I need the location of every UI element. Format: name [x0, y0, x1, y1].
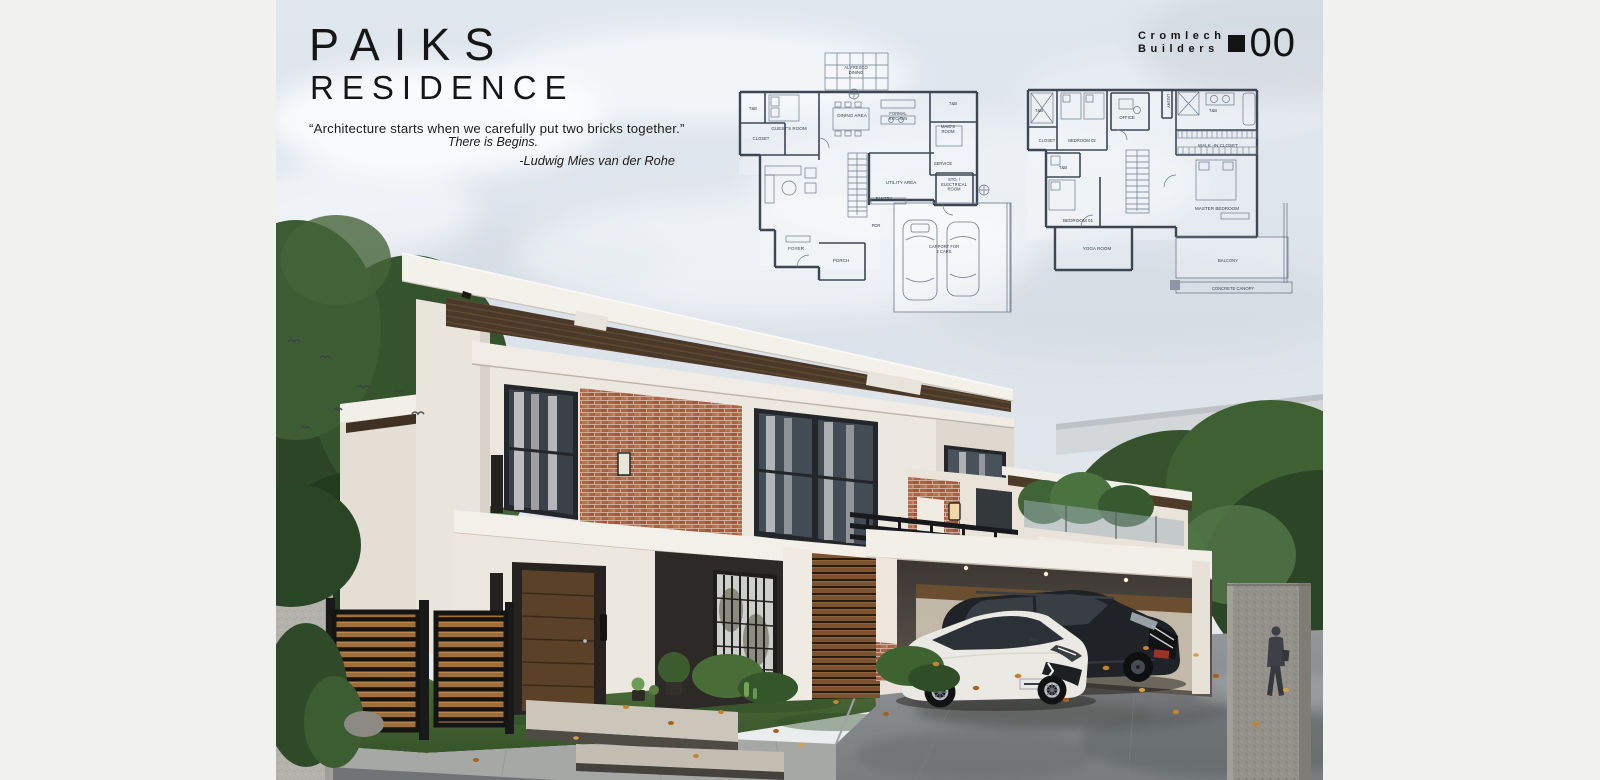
window-upper-right	[754, 408, 878, 551]
room-label: T&B	[1209, 108, 1217, 113]
room-label: T&B	[1035, 108, 1043, 113]
presentation-board: AL FRESCODINING T&B GUEST'S ROOM CLOSET …	[276, 0, 1323, 780]
wall-sconce-lit	[949, 503, 960, 520]
room-label: FOYER	[788, 246, 805, 251]
carport-column	[1192, 560, 1210, 694]
carport-light	[1124, 578, 1128, 582]
brick-wall	[580, 388, 742, 540]
cactus	[744, 682, 749, 697]
wood-gate-panel	[436, 613, 506, 725]
accent-slot-window	[491, 455, 503, 513]
builder-name: Cromlech Builders	[1138, 30, 1226, 57]
room-label: CONCRETE CANOPY	[1212, 286, 1255, 291]
sedan-wheel	[1038, 676, 1067, 705]
brick-accent-window	[618, 453, 630, 475]
room-label: CLOSET	[1039, 138, 1056, 143]
door-sconce	[600, 614, 607, 641]
room-label: MASTER BEDROOM	[1195, 206, 1239, 211]
room-label: SERVICE	[934, 161, 953, 166]
room-label: OFFICE	[1119, 115, 1135, 120]
project-title-line2: RESIDENCE	[310, 71, 575, 104]
second-floor-plan: T&B CLOSET BEDROOM 02 OFFICE LNDRY T&B W…	[1021, 85, 1296, 300]
room-label: DINING AREA	[837, 113, 868, 118]
bag	[1281, 650, 1289, 662]
builder-name-line1: Cromlech	[1138, 30, 1226, 43]
room-label: YOGA ROOM	[1083, 246, 1112, 251]
quote-block: “Architecture starts when we carefully p…	[309, 121, 677, 168]
builder-logo: Cromlech Builders 00	[1138, 26, 1296, 60]
entry-slot-window	[490, 573, 503, 617]
logo-square-icon	[1228, 35, 1245, 52]
room-label: LNDRY	[1166, 94, 1171, 108]
suv-plate	[1154, 649, 1170, 659]
room-label: WALK -IN CLOSET	[1198, 143, 1238, 148]
room-label: BALCONY	[1218, 258, 1238, 263]
sheet-number: 00	[1250, 26, 1297, 60]
room-label: MAID'SROOM	[941, 124, 955, 134]
room-label: GUEST'S ROOM	[771, 126, 807, 131]
side-mirror	[1030, 638, 1037, 642]
ground-floor-plan: AL FRESCODINING T&B GUEST'S ROOM CLOSET …	[731, 40, 1021, 325]
carport-light	[1044, 572, 1048, 576]
room-label: PORCH	[833, 258, 850, 263]
presentation-board-canvas: AL FRESCODINING T&B GUEST'S ROOM CLOSET …	[0, 0, 1600, 780]
door-handle	[583, 639, 587, 643]
suv-wheel	[1123, 652, 1153, 682]
builder-name-line2: Builders	[1138, 43, 1226, 56]
ground-floor-facade	[454, 533, 936, 715]
room-label: T&B	[749, 106, 757, 111]
front-door	[522, 570, 594, 711]
room-label: CLOSET	[753, 136, 770, 141]
room-label: BEDROOM 01	[1063, 218, 1094, 223]
window-upper-left	[504, 384, 578, 520]
room-label: BEDROOM 02	[1068, 138, 1096, 143]
project-title-line1: PAIKS	[309, 22, 508, 67]
room-label: UTILITY AREA	[886, 180, 917, 185]
wood-slat-wall	[812, 553, 880, 699]
room-label: PDR	[872, 223, 881, 228]
quote-attribution: -Ludwig Mies van der Rohe	[309, 153, 677, 168]
rock	[344, 711, 384, 737]
carport-light	[964, 566, 968, 570]
cactus	[753, 688, 757, 699]
quote-line2: There is Begins.	[309, 135, 677, 149]
room-label: FORMALKITCHEN	[889, 111, 908, 121]
room-label: T&B	[949, 101, 957, 106]
room-label: PANTRY	[876, 196, 893, 201]
quote-line1: “Architecture starts when we carefully p…	[309, 121, 677, 136]
room-label: T&B	[1059, 165, 1067, 170]
